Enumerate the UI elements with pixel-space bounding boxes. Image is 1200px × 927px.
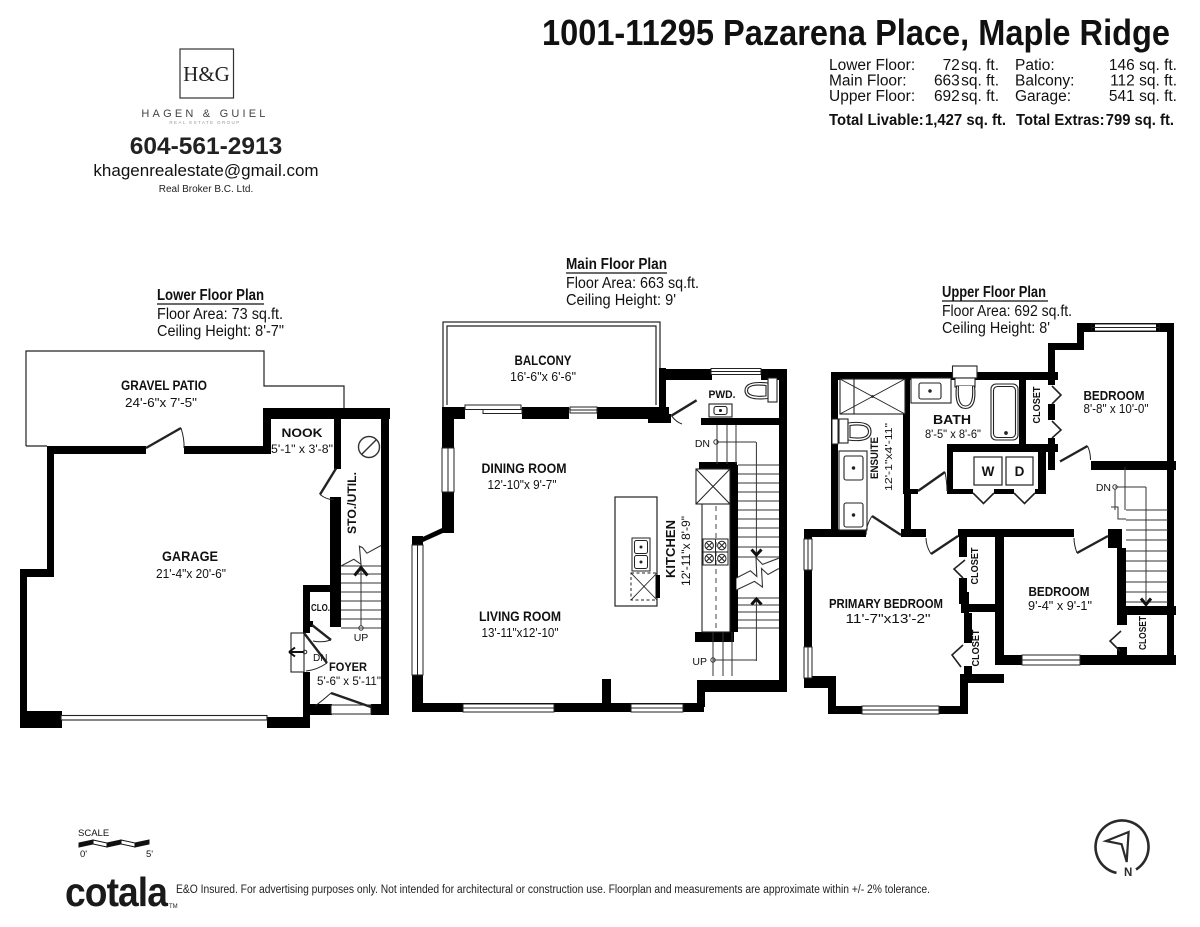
svg-text:Floor Area: 73 sq.ft.: Floor Area: 73 sq.ft. <box>157 306 283 323</box>
svg-text:CLOSET: CLOSET <box>1138 616 1149 650</box>
svg-text:DINING ROOM: DINING ROOM <box>482 460 567 476</box>
svg-text:21'-4"x 20'-6": 21'-4"x 20'-6" <box>156 566 226 581</box>
svg-text:5'-1" x 3'-8": 5'-1" x 3'-8" <box>271 444 333 456</box>
svg-text:Ceiling Height: 8'-7": Ceiling Height: 8'-7" <box>157 323 284 340</box>
svg-text:CLO.: CLO. <box>311 603 330 614</box>
svg-text:Upper Floor Plan: Upper Floor Plan <box>942 284 1046 301</box>
svg-text:8'-5" x 8'-6": 8'-5" x 8'-6" <box>925 427 981 441</box>
svg-text:cotala: cotala <box>65 869 169 915</box>
svg-text:BALCONY: BALCONY <box>515 353 572 368</box>
svg-text:Lower Floor:: Lower Floor: <box>829 57 915 74</box>
svg-text:GARAGE: GARAGE <box>162 548 218 564</box>
svg-text:Lower Floor Plan: Lower Floor Plan <box>157 287 264 304</box>
svg-text:TM: TM <box>169 904 178 910</box>
svg-text:UP: UP <box>354 632 369 644</box>
svg-text:5': 5' <box>146 849 153 860</box>
svg-text:PRIMARY BEDROOM: PRIMARY BEDROOM <box>829 596 943 611</box>
svg-text:663 sq. ft.: 663 sq. ft. <box>934 73 999 90</box>
svg-text:BATH: BATH <box>933 412 971 427</box>
svg-text:16'-6"x 6'-6": 16'-6"x 6'-6" <box>510 369 576 384</box>
svg-text:112 sq. ft.: 112 sq. ft. <box>1110 73 1177 90</box>
svg-text:Floor Area: 663 sq.ft.: Floor Area: 663 sq.ft. <box>566 275 699 292</box>
svg-text:DN: DN <box>695 438 710 450</box>
svg-text:UP: UP <box>692 656 707 668</box>
svg-text:Total Livable: 1,427 sq. ft.: Total Livable: 1,427 sq. ft. <box>829 112 1006 129</box>
svg-text:BEDROOM: BEDROOM <box>1029 584 1090 599</box>
svg-text:SCALE: SCALE <box>78 828 109 839</box>
svg-text:LIVING ROOM: LIVING ROOM <box>479 608 561 624</box>
svg-text:HAGEN & GUIEL: HAGEN & GUIEL <box>141 108 268 120</box>
svg-text:CLOSET: CLOSET <box>970 548 981 585</box>
svg-text:W: W <box>982 464 995 479</box>
svg-text:Balcony:: Balcony: <box>1015 73 1074 90</box>
svg-text:1001-11295 Pazarena Place, Map: 1001-11295 Pazarena Place, Maple Ridge <box>542 12 1170 53</box>
svg-text:DN: DN <box>313 653 327 664</box>
svg-text:5'-6" x 5'-11": 5'-6" x 5'-11" <box>317 676 381 688</box>
svg-text:KITCHEN: KITCHEN <box>663 520 678 578</box>
svg-text:STO./UTIL.: STO./UTIL. <box>345 472 359 534</box>
svg-text:DN: DN <box>1096 482 1111 494</box>
svg-text:CLOSET: CLOSET <box>1032 387 1043 424</box>
svg-text:Garage:: Garage: <box>1015 88 1071 105</box>
svg-text:Main Floor Plan: Main Floor Plan <box>566 256 667 273</box>
svg-text:N: N <box>1124 867 1132 879</box>
svg-text:12'-10"x 9'-7": 12'-10"x 9'-7" <box>488 477 557 492</box>
svg-text:604-561-2913: 604-561-2913 <box>130 133 283 160</box>
svg-text:8'-8" x 10'-0": 8'-8" x 10'-0" <box>1084 402 1149 416</box>
svg-text:541 sq. ft.: 541 sq. ft. <box>1109 88 1177 105</box>
svg-text:PWD.: PWD. <box>709 389 736 401</box>
svg-text:REAL ESTATE GROUP: REAL ESTATE GROUP <box>169 120 240 125</box>
svg-text:NOOK: NOOK <box>282 426 323 440</box>
svg-text:D: D <box>1015 464 1025 479</box>
svg-text:24'-6"x 7'-5": 24'-6"x 7'-5" <box>125 395 197 410</box>
svg-text:Patio:: Patio: <box>1015 57 1055 74</box>
svg-text:13'-11"x12'-10": 13'-11"x12'-10" <box>482 625 559 640</box>
svg-text:11'-7"x13'-2": 11'-7"x13'-2" <box>846 612 931 626</box>
svg-text:ENSUITE: ENSUITE <box>869 437 881 479</box>
svg-text:khagenrealestate@gmail.com: khagenrealestate@gmail.com <box>93 161 318 180</box>
svg-text:GRAVEL PATIO: GRAVEL PATIO <box>121 378 207 393</box>
svg-text:Total Extras: 799 sq. ft.: Total Extras: 799 sq. ft. <box>1016 112 1174 129</box>
svg-text:BEDROOM: BEDROOM <box>1084 388 1145 403</box>
svg-text:Upper Floor:: Upper Floor: <box>829 88 915 105</box>
svg-text:Ceiling Height: 8': Ceiling Height: 8' <box>942 320 1050 337</box>
svg-text:Ceiling Height: 9': Ceiling Height: 9' <box>566 292 676 309</box>
svg-text:12'-11"x 8'-9": 12'-11"x 8'-9" <box>679 516 693 586</box>
svg-text:146 sq. ft.: 146 sq. ft. <box>1109 57 1177 74</box>
svg-text:692 sq. ft.: 692 sq. ft. <box>934 88 999 105</box>
svg-text:Floor Area: 692 sq.ft.: Floor Area: 692 sq.ft. <box>942 303 1072 320</box>
svg-text:12'-1"x4'-11": 12'-1"x4'-11" <box>883 423 895 491</box>
svg-text:Main Floor:: Main Floor: <box>829 73 907 90</box>
svg-text:E&O Insured. For advertising p: E&O Insured. For advertising purposes on… <box>176 884 930 896</box>
svg-text:0': 0' <box>80 849 87 860</box>
svg-text:72 sq. ft.: 72 sq. ft. <box>943 57 999 74</box>
svg-text:Real Broker B.C. Ltd.: Real Broker B.C. Ltd. <box>159 184 253 195</box>
svg-text:9'-4" x 9'-1": 9'-4" x 9'-1" <box>1028 599 1092 613</box>
svg-text:CLOSET: CLOSET <box>971 630 982 667</box>
svg-text:FOYER: FOYER <box>329 660 367 674</box>
svg-text:H&G: H&G <box>183 62 230 86</box>
